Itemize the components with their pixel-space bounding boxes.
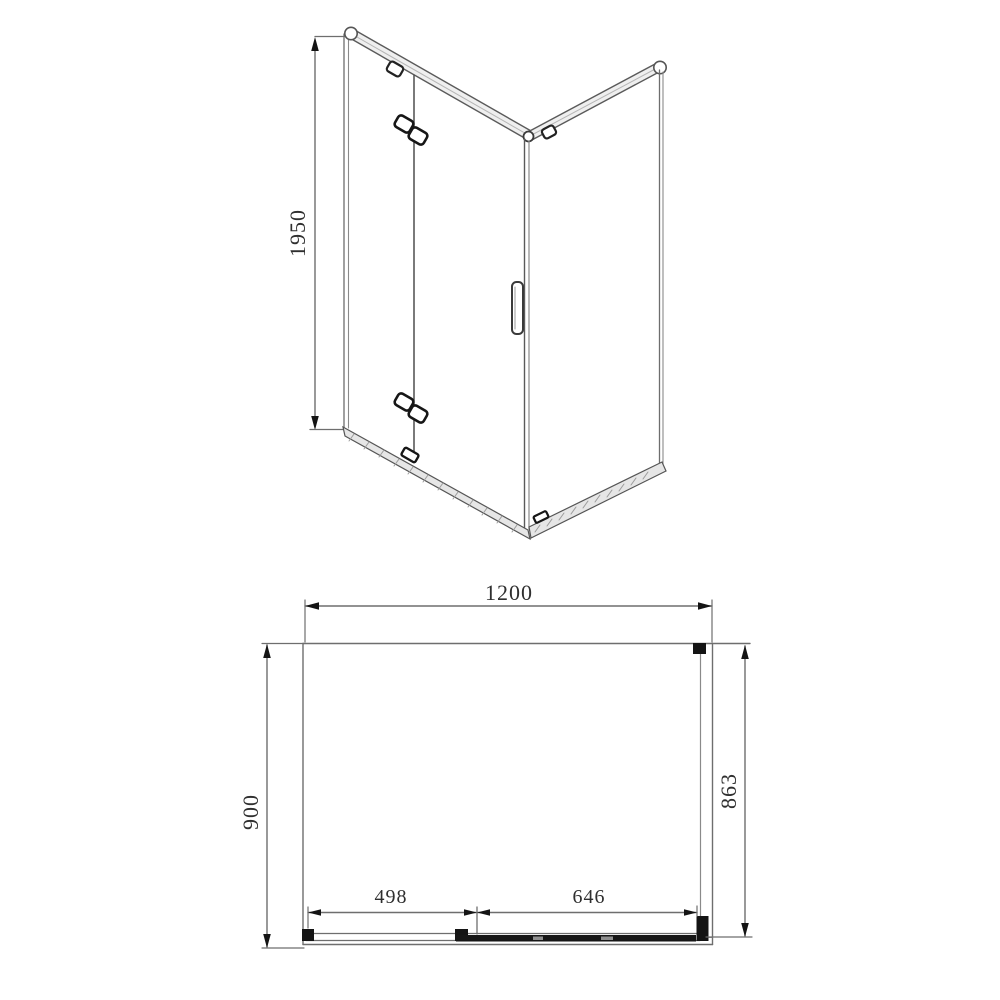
dim-label-fixed-panel: 498 — [375, 886, 408, 908]
technical-drawing-page: 1950 — [0, 0, 1000, 1000]
bottom-sill-front — [343, 427, 530, 539]
arrow-right-icon — [698, 602, 712, 609]
arrow-right-icon — [684, 909, 697, 916]
dim-label-side-panel: 863 — [716, 773, 741, 809]
perspective-view: 1950 — [285, 27, 666, 539]
door-hinge-top — [393, 114, 428, 146]
top-rail-left — [348, 29, 532, 141]
arrow-right-icon — [464, 909, 477, 916]
dimension-door-646: 646 — [477, 886, 697, 916]
dimension-height-1950: 1950 — [285, 37, 349, 431]
arrow-left-icon — [308, 909, 321, 916]
door-handle — [512, 282, 523, 334]
arrow-down-icon — [311, 416, 319, 430]
arrow-up-icon — [311, 37, 319, 51]
door-panel-highlight — [533, 937, 543, 941]
arrow-down-icon — [263, 934, 271, 948]
corner-post — [525, 139, 530, 529]
dim-label-height: 1950 — [285, 209, 310, 257]
sliding-door-panel — [456, 935, 696, 942]
arrow-left-icon — [305, 602, 319, 609]
dim-label-width: 1200 — [485, 580, 533, 605]
plan-view: 1200 900 863 498 — [238, 580, 752, 948]
track-end-block-left — [302, 929, 314, 941]
left-panel-front-edge — [344, 34, 349, 428]
shower-enclosure-drawing: 1950 — [0, 0, 1000, 1000]
door-hinge-bottom — [393, 392, 428, 424]
arrow-up-icon — [263, 644, 271, 658]
bottom-sill-side — [529, 462, 666, 538]
arrow-down-icon — [741, 923, 749, 937]
right-panel-edge — [660, 70, 664, 467]
dim-label-depth: 900 — [238, 794, 263, 830]
plan-outline — [303, 644, 750, 945]
dimension-width-1200: 1200 — [305, 580, 712, 642]
rail-end-cap-left — [345, 27, 357, 39]
door-panel-highlight — [601, 937, 613, 941]
wall-profile-block — [693, 643, 706, 654]
arrow-left-icon — [477, 909, 490, 916]
arrow-up-icon — [741, 645, 749, 659]
dimension-fixed-panel-498: 498 — [308, 886, 477, 928]
dim-label-door: 646 — [573, 886, 606, 908]
dimension-depth-900: 900 — [238, 644, 304, 949]
